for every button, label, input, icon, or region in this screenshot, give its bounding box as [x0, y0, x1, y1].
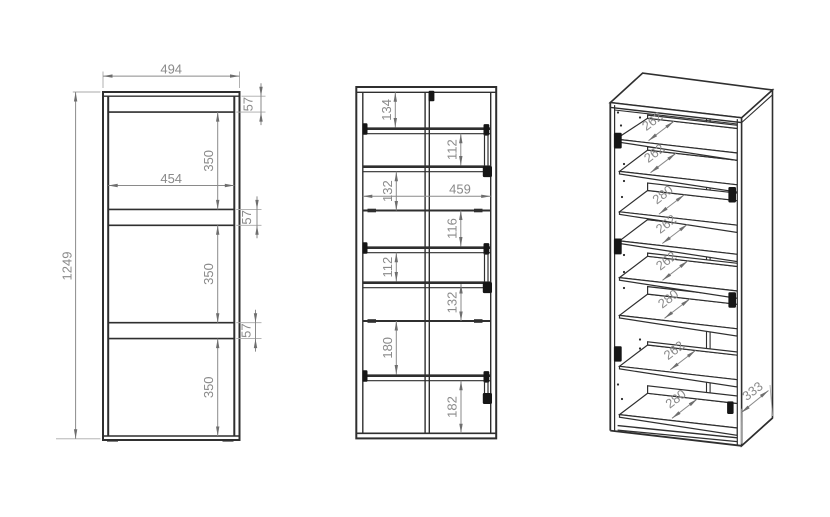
svg-text:57: 57 [239, 210, 254, 224]
svg-text:132: 132 [380, 180, 395, 202]
svg-text:134: 134 [379, 99, 394, 121]
svg-text:350: 350 [201, 150, 216, 172]
svg-text:182: 182 [445, 396, 460, 418]
svg-text:350: 350 [201, 376, 216, 398]
svg-text:180: 180 [380, 337, 395, 359]
svg-text:112: 112 [380, 257, 395, 278]
svg-text:350: 350 [201, 263, 216, 285]
svg-text:57: 57 [239, 323, 254, 337]
svg-text:112: 112 [444, 139, 459, 160]
svg-text:494: 494 [160, 62, 182, 77]
svg-text:57: 57 [241, 97, 256, 111]
svg-text:132: 132 [445, 292, 460, 314]
svg-text:116: 116 [444, 218, 459, 239]
svg-text:454: 454 [160, 171, 182, 186]
svg-text:1249: 1249 [60, 252, 75, 281]
svg-text:459: 459 [449, 182, 471, 197]
